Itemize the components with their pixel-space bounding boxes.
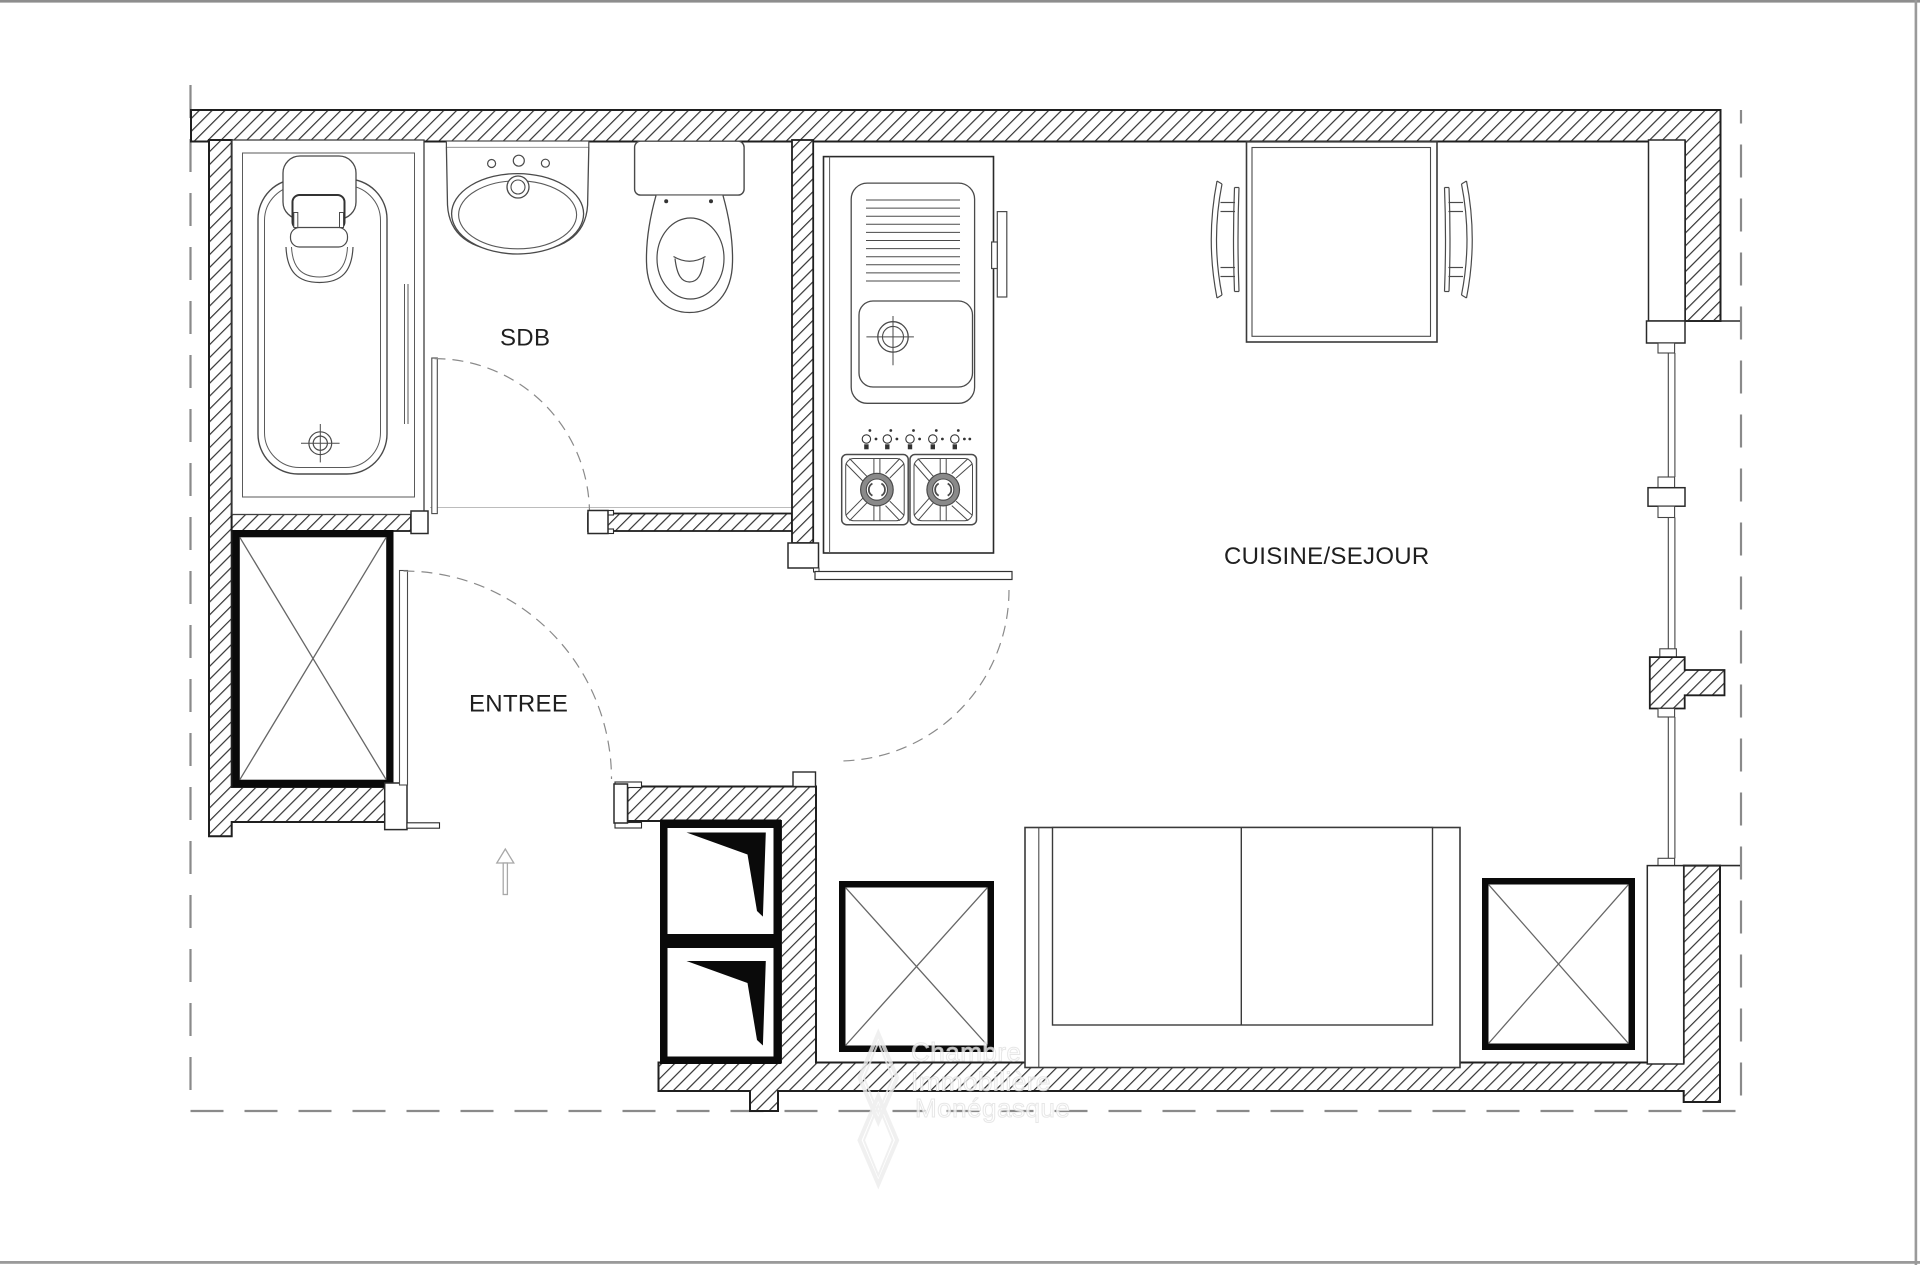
svg-text:SDB: SDB [500,325,550,352]
svg-text:Chambre: Chambre [911,1037,1021,1067]
svg-text:Immobilière: Immobilière [911,1067,1051,1097]
svg-text:Monégasque: Monégasque [915,1093,1070,1123]
svg-text:CUISINE/SEJOUR: CUISINE/SEJOUR [1224,543,1430,570]
svg-text:ENTREE: ENTREE [469,691,568,718]
